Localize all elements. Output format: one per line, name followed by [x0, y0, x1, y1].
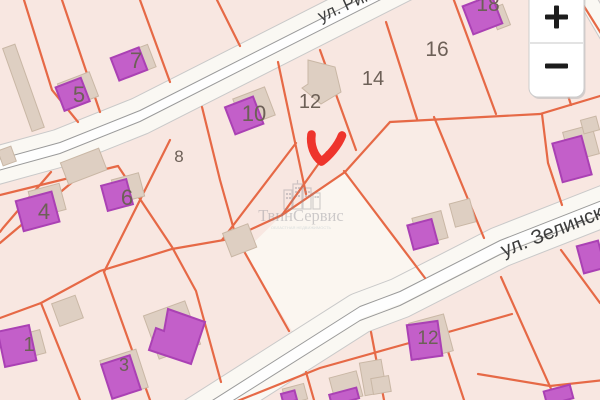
svg-text:18: 18 [476, 0, 499, 16]
svg-text:3: 3 [119, 355, 129, 375]
svg-text:5: 5 [73, 82, 85, 107]
svg-text:12: 12 [299, 91, 321, 113]
svg-text:4: 4 [38, 199, 50, 224]
svg-text:8: 8 [174, 147, 183, 166]
svg-text:1: 1 [23, 334, 34, 356]
svg-text:12: 12 [417, 328, 438, 349]
svg-text:ОБЛАСТНАЯ НЕДВИЖИМОСТЬ: ОБЛАСТНАЯ НЕДВИЖИМОСТЬ [271, 225, 332, 230]
svg-text:ТвинСервис: ТвинСервис [258, 206, 343, 225]
svg-text:7: 7 [130, 48, 142, 73]
svg-text:10: 10 [242, 101, 266, 126]
svg-text:14: 14 [362, 68, 384, 90]
svg-text:16: 16 [425, 38, 448, 61]
svg-text:6: 6 [121, 185, 133, 210]
